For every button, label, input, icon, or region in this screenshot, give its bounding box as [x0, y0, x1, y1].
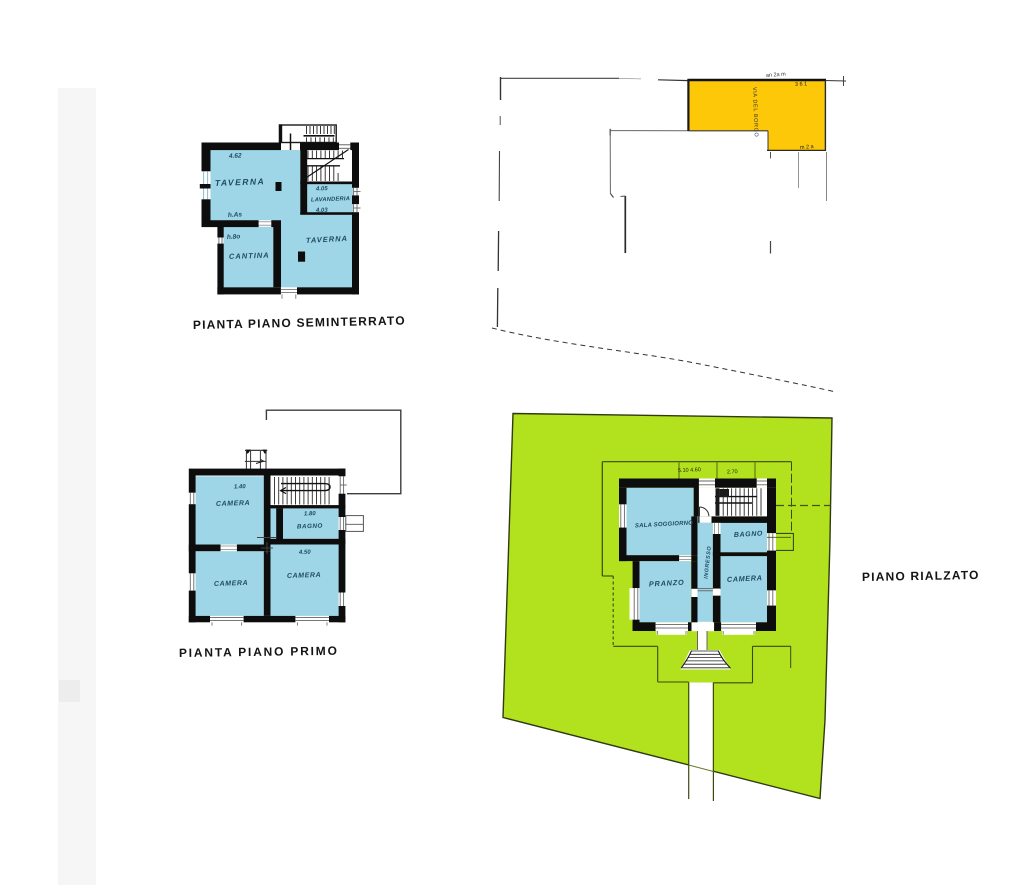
svg-text:1.40: 1.40	[234, 484, 247, 490]
svg-text:TAVERNA: TAVERNA	[215, 176, 266, 188]
svg-text:CANTINA: CANTINA	[229, 251, 270, 261]
svg-text:PIANO RIALZATO: PIANO RIALZATO	[862, 568, 980, 584]
svg-text:2.70: 2.70	[727, 469, 738, 475]
svg-text:4.05: 4.05	[315, 186, 329, 192]
svg-text:BAGNO: BAGNO	[297, 523, 323, 531]
svg-text:4.50: 4.50	[298, 550, 312, 556]
svg-text:CAMERA: CAMERA	[214, 580, 249, 588]
svg-text:h.8o: h.8o	[227, 233, 241, 241]
svg-text:CAMERA: CAMERA	[727, 573, 763, 584]
svg-text:3 6 1: 3 6 1	[795, 81, 808, 88]
svg-text:h.As: h.As	[228, 211, 243, 219]
svg-text:5.10 4.60: 5.10 4.60	[678, 467, 701, 474]
svg-text:CAMERA: CAMERA	[287, 572, 322, 580]
svg-text:PIANTA PIANO PRIMO: PIANTA PIANO PRIMO	[179, 644, 339, 660]
svg-text:CAMERA: CAMERA	[216, 500, 251, 508]
svg-text:1.80: 1.80	[304, 511, 317, 517]
svg-text:PRANZO: PRANZO	[649, 578, 685, 589]
svg-text:4.03: 4.03	[315, 208, 329, 214]
svg-text:m 2 a: m 2 a	[800, 144, 815, 151]
svg-text:4.62: 4.62	[228, 153, 242, 160]
